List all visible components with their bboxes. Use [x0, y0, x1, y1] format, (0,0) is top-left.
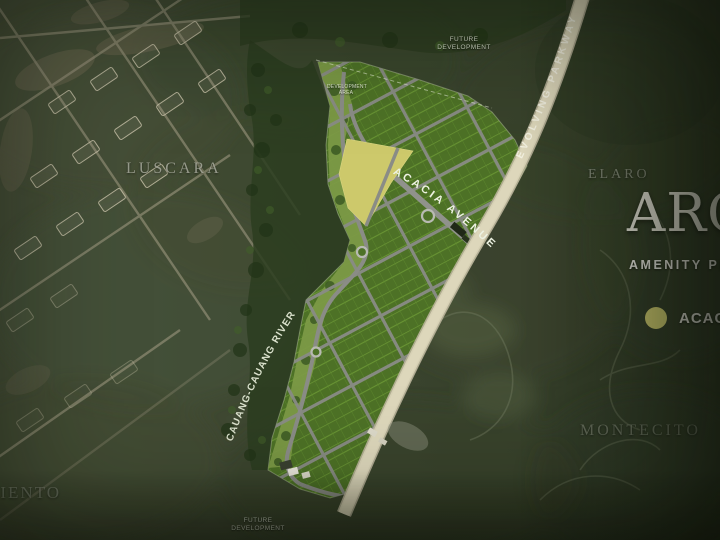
site-map-svg: EVOLVING PARKWAY ACACIA AVENUE CAUANG-CA…: [0, 0, 720, 540]
masterplan-map: EVOLVING PARKWAY ACACIA AVENUE CAUANG-CA…: [0, 0, 720, 540]
